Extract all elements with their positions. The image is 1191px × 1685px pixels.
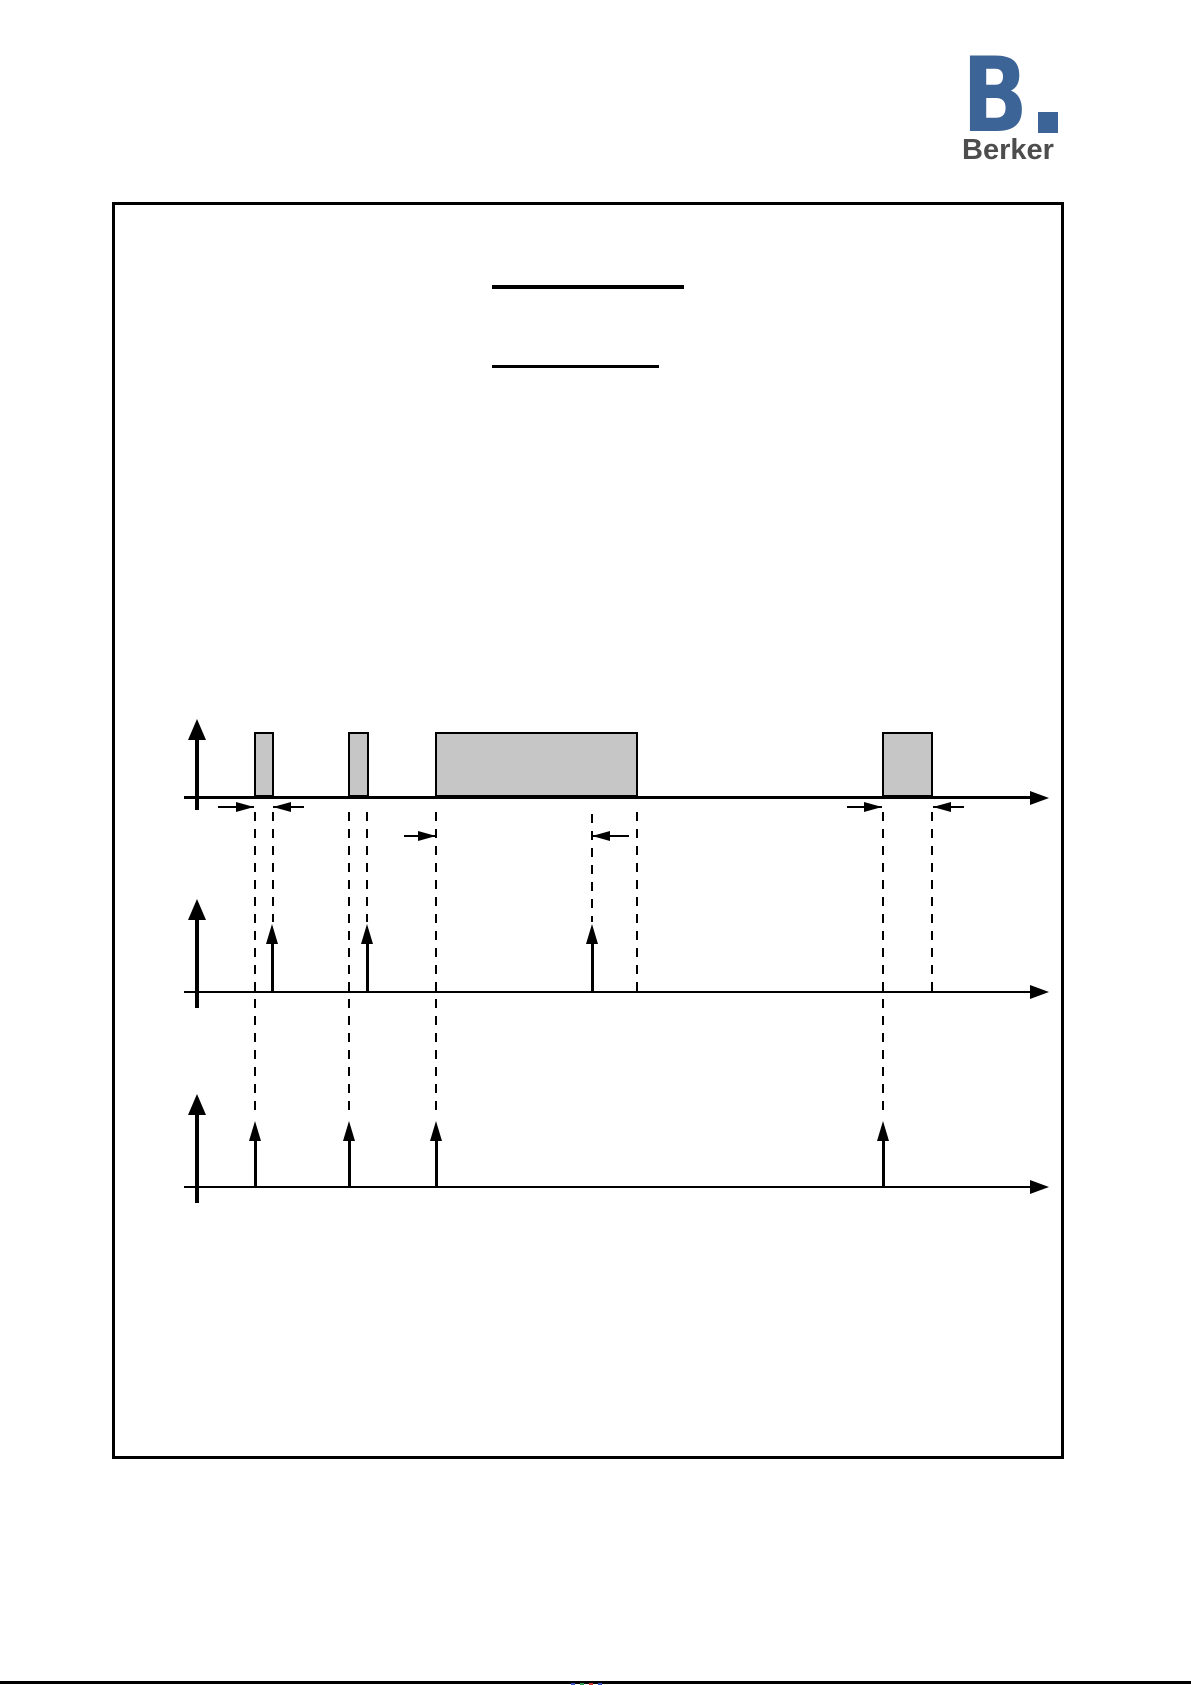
page-footer-rule xyxy=(0,1681,1191,1684)
value-axis-arrowhead-icon xyxy=(188,719,206,740)
dashed-guide xyxy=(366,812,368,922)
event-arrow-shaft xyxy=(271,943,274,991)
pulse xyxy=(882,732,933,797)
dashed-guide xyxy=(931,812,933,991)
dashed-guide xyxy=(882,812,884,1118)
axis-line xyxy=(184,1186,1034,1188)
value-axis-arrow-shaft xyxy=(195,918,199,1008)
dimension-arrowhead-icon xyxy=(273,802,291,812)
value-axis-arrowhead-icon xyxy=(188,1094,206,1115)
dashed-guide xyxy=(254,812,256,1118)
dashed-guide xyxy=(636,812,638,991)
event-arrow-shaft xyxy=(348,1139,351,1186)
dashed-guide xyxy=(272,812,274,922)
axis-arrowhead-icon xyxy=(1030,1180,1049,1194)
axis-arrowhead-icon xyxy=(1030,791,1049,805)
dimension-arrowhead-icon xyxy=(933,802,951,812)
event-arrow-shaft xyxy=(254,1139,257,1186)
event-arrowhead-icon xyxy=(266,924,278,944)
event-arrow-shaft xyxy=(366,943,369,991)
event-arrowhead-icon xyxy=(249,1121,261,1141)
value-axis-arrow-shaft xyxy=(195,738,199,810)
event-arrowhead-icon xyxy=(361,924,373,944)
dimension-arrowhead-icon xyxy=(236,802,254,812)
axis-line xyxy=(184,991,1034,993)
dashed-guide xyxy=(435,812,437,1118)
timing-diagram xyxy=(0,0,1191,1685)
pulse xyxy=(348,732,369,797)
event-arrowhead-icon xyxy=(586,924,598,944)
dashed-guide xyxy=(348,812,350,1118)
event-arrow-shaft xyxy=(882,1139,885,1186)
axis-arrowhead-icon xyxy=(1030,985,1049,999)
value-axis-arrow-shaft xyxy=(195,1113,199,1203)
value-axis-arrowhead-icon xyxy=(188,899,206,920)
pulse xyxy=(435,732,638,797)
event-arrowhead-icon xyxy=(343,1121,355,1141)
event-arrowhead-icon xyxy=(430,1121,442,1141)
dimension-arrowhead-icon xyxy=(418,831,436,841)
dimension-arrowhead-icon xyxy=(592,831,610,841)
event-arrow-shaft xyxy=(435,1139,438,1186)
document-page: B Berker xyxy=(0,0,1191,1685)
event-arrow-shaft xyxy=(591,943,594,991)
pulse xyxy=(254,732,274,797)
event-arrowhead-icon xyxy=(877,1121,889,1141)
dimension-arrowhead-icon xyxy=(864,802,882,812)
